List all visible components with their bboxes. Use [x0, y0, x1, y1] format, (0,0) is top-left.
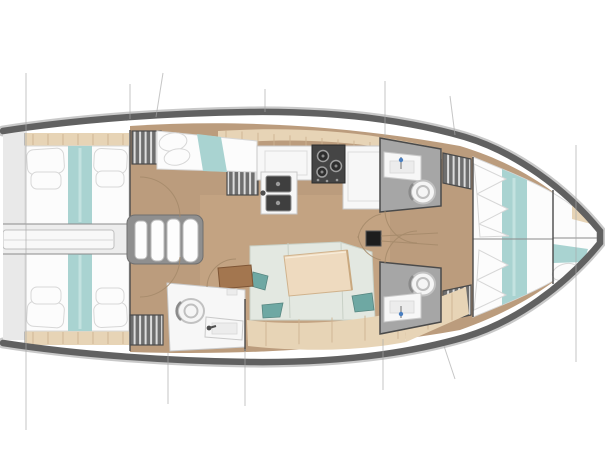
aft-cabin-starboard: [25, 253, 129, 345]
pillow: [26, 301, 65, 329]
fwd-head-port-sink: [384, 152, 421, 181]
pillow: [31, 172, 61, 189]
stair-step: [135, 221, 147, 259]
pillow: [96, 171, 124, 187]
toilet: [177, 299, 204, 323]
stair-step: [183, 219, 198, 262]
throw-pillow: [262, 303, 283, 318]
wardrobe-aft-starboard: [130, 315, 163, 345]
fwd-head-starboard-sink: [384, 293, 421, 322]
fwd-head-starboard: [380, 262, 441, 334]
stair-step: [167, 219, 180, 262]
yacht-floor-plan: [0, 0, 605, 465]
toilet: [410, 273, 435, 296]
wardrobe-galley: [227, 171, 258, 195]
aft-cabin-port: [25, 133, 129, 224]
toilet: [410, 181, 435, 204]
pillow: [26, 148, 65, 176]
pillow: [93, 148, 127, 174]
throw-pillow: [352, 293, 374, 312]
pillow: [31, 287, 61, 304]
wardrobe-fwd-port: [443, 153, 471, 189]
aft-starboard-shelf: [25, 331, 129, 345]
vent: [227, 289, 237, 295]
floor-plan-drawing: [0, 0, 605, 465]
rigging-line: [444, 346, 455, 379]
fwd-head-port: [380, 138, 441, 212]
galley-sink: [260, 172, 297, 214]
stair-step: [151, 220, 164, 261]
pillow: [93, 302, 127, 328]
aft-port-shelf: [25, 133, 129, 146]
engine-compartment: [0, 224, 130, 254]
pillow: [96, 288, 124, 304]
side-table: [218, 265, 253, 289]
aft-head-sink: [205, 317, 243, 340]
aft-head: [167, 283, 245, 351]
companionway-stairs: [127, 215, 203, 264]
stove: [312, 145, 345, 183]
